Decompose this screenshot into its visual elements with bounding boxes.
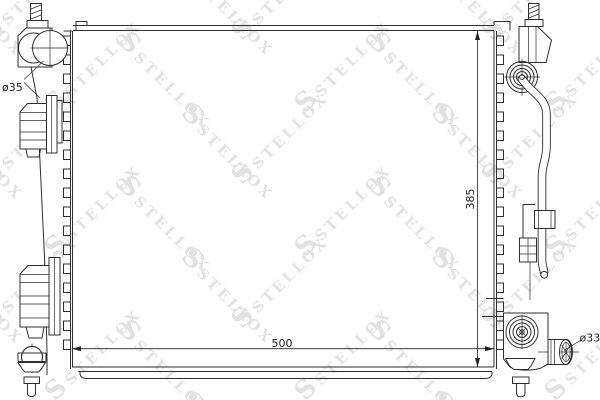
radiator-drawing-canvas: SSTELLOXSSTELLOXSSTELLOXSSTELLOXSSTELLOX… [0,0,600,400]
watermark-text: SSTELLOX [289,154,398,263]
watermark-text: SSTELLOX [476,82,585,191]
mount-pin-right [506,359,536,397]
watermark-text: SSTELLOX [39,154,148,263]
inlet-diameter-label: ø35 [2,81,23,94]
drain-plug [18,344,46,374]
watermark-text: SSTELLOX [289,10,398,119]
hose-bracket-arm [523,205,535,241]
top-bracket-right [519,27,552,63]
mount-bracket-upper-left [20,96,62,158]
inlet-port [18,28,69,98]
hose-clamp [535,211,556,229]
filler-cap [27,4,48,29]
watermark-text: SSTELLOX [226,0,335,47]
mount-bracket-lower-left [20,258,60,339]
watermark-text: SSTELLOX [226,82,335,191]
height-dimension-label: 385 [464,189,477,210]
radiator-technical-drawing: SSTELLOXSSTELLOXSSTELLOXSSTELLOXSSTELLOX… [0,0,600,400]
outlet-diameter-label: ø33 [580,332,600,345]
watermark-text: SSTELLOX [226,226,335,335]
dimension-height: 385 [464,31,480,367]
mount-pin-left [24,377,40,397]
width-dimension-label: 500 [272,337,293,350]
hose-tip-opening [541,271,548,278]
